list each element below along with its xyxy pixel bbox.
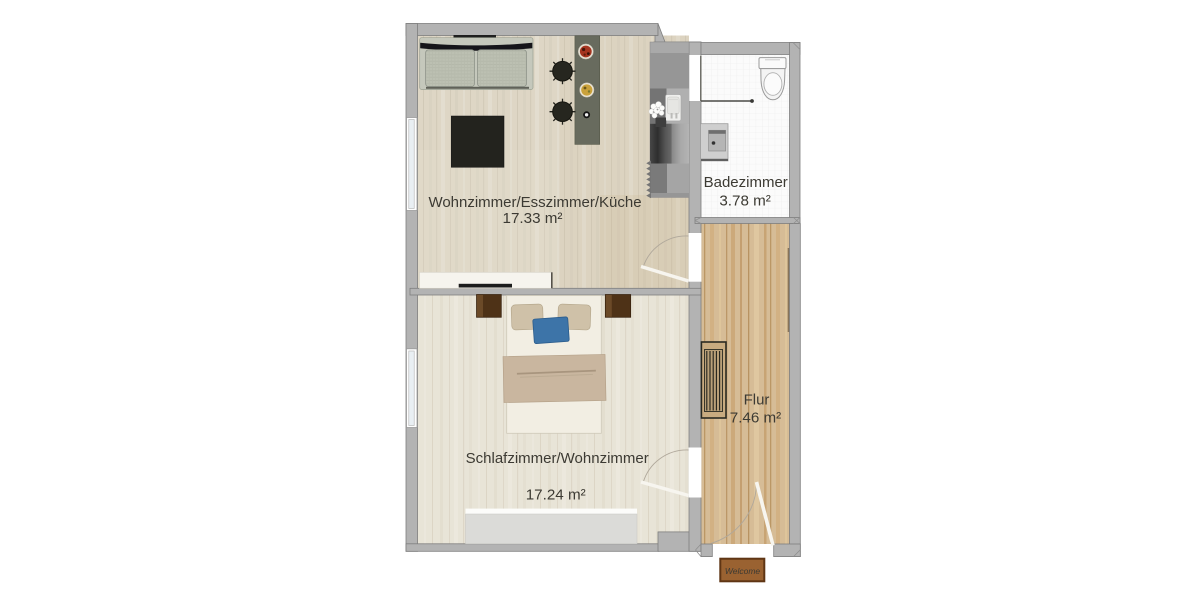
svg-text:17.24 m²: 17.24 m²	[526, 486, 586, 503]
svg-text:17.33 m²: 17.33 m²	[503, 210, 563, 227]
svg-text:Schlafzimmer/Wohnzimmer: Schlafzimmer/Wohnzimmer	[466, 450, 649, 467]
svg-text:3.78 m²: 3.78 m²	[719, 193, 771, 210]
svg-text:Welcome: Welcome	[725, 566, 761, 576]
svg-text:Wohnzimmer/Esszimmer/Küche: Wohnzimmer/Esszimmer/Küche	[428, 194, 641, 211]
svg-text:Flur: Flur	[744, 391, 770, 408]
svg-text:Badezimmer: Badezimmer	[704, 174, 788, 191]
svg-text:7.46 m²: 7.46 m²	[730, 410, 782, 427]
